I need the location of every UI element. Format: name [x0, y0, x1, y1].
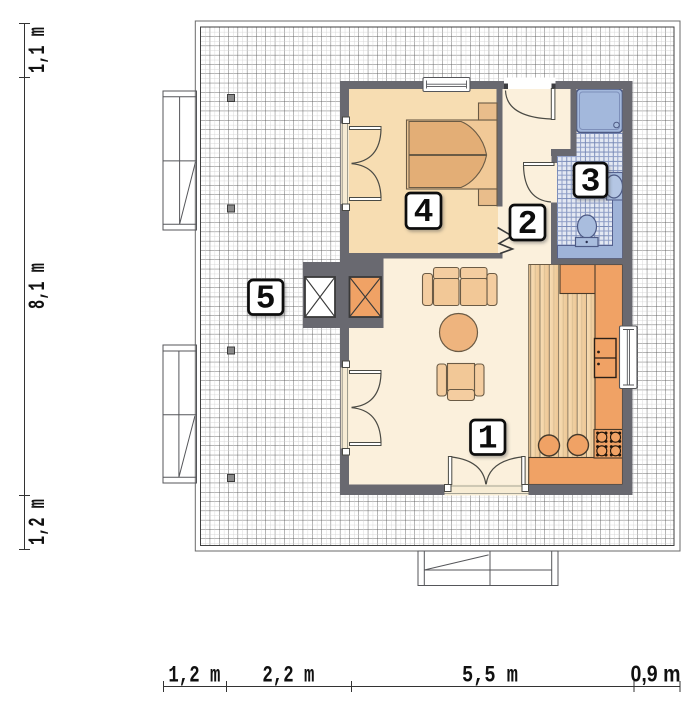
svg-text:1,2 m: 1,2 m: [168, 663, 220, 689]
svg-text:1: 1: [478, 421, 498, 458]
svg-text:8,1 m: 8,1 m: [25, 263, 51, 309]
svg-text:0,9 m: 0,9 m: [631, 661, 681, 687]
svg-text:5: 5: [256, 281, 276, 318]
svg-text:4: 4: [414, 194, 434, 231]
svg-text:5,5 m: 5,5 m: [462, 663, 518, 689]
svg-text:1,1 m: 1,1 m: [25, 27, 51, 73]
svg-text:2,2 m: 2,2 m: [262, 663, 314, 689]
svg-text:3: 3: [581, 164, 601, 201]
svg-text:1,2 m: 1,2 m: [25, 499, 51, 545]
svg-text:2: 2: [518, 206, 538, 243]
